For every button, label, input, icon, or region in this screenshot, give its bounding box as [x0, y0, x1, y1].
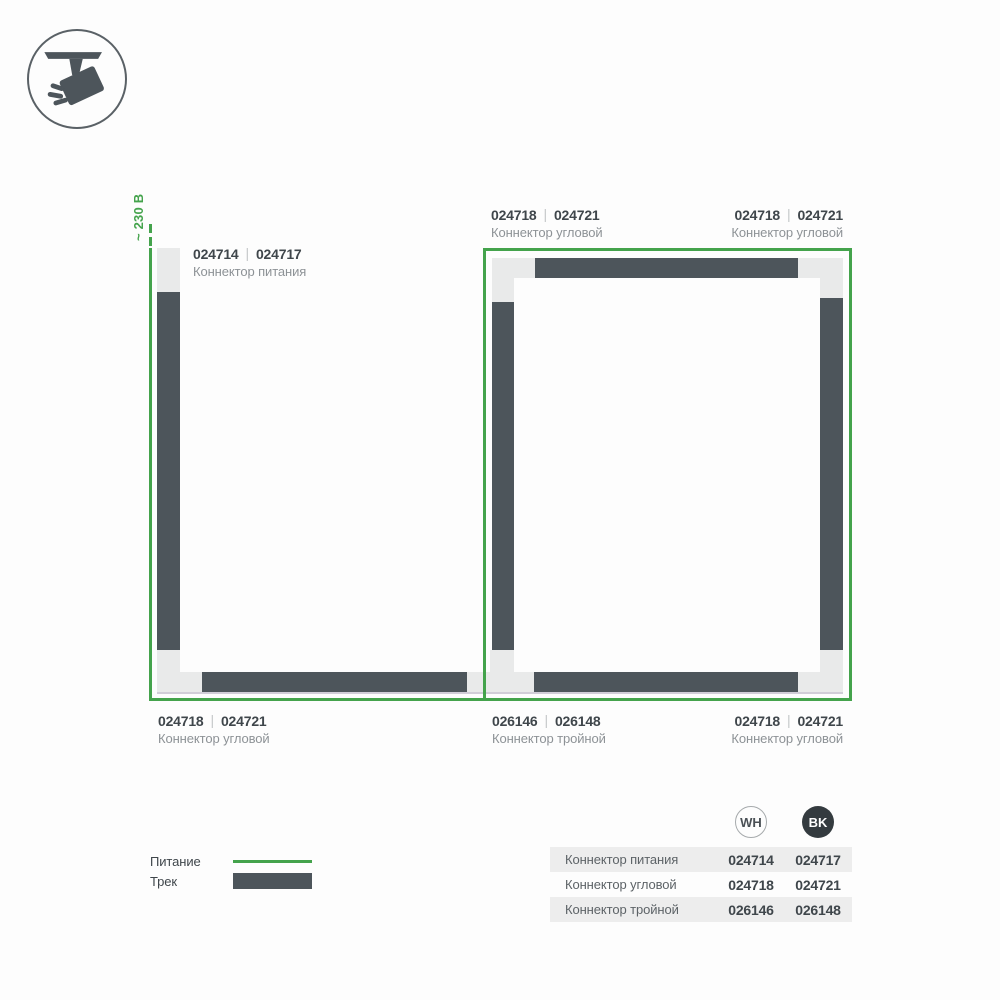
separator: | — [538, 712, 555, 728]
separator: | — [780, 712, 797, 728]
legend-track-label: Трек — [150, 874, 177, 889]
power-line-loop — [483, 248, 852, 701]
part-number-bk: 026148 — [555, 713, 601, 729]
part-number-bk: 024721 — [797, 713, 843, 729]
header-spacer — [550, 806, 718, 838]
connector-name: Коннектор питания — [193, 265, 306, 279]
row-wh-number: 024718 — [718, 877, 784, 893]
part-number-bk: 024717 — [256, 246, 302, 262]
table-row: Коннектор тройной 026146 026148 — [550, 897, 852, 922]
parts-table-header: WH BK — [550, 806, 852, 838]
connector-name: Коннектор угловой — [491, 226, 603, 240]
table-row: Коннектор питания 024714 024717 — [550, 847, 852, 872]
callout-corner-top-right: 024718|024721 Коннектор угловой — [731, 208, 843, 241]
part-numbers: 026146|026148 — [492, 714, 606, 729]
callout-triple-connector: 026146|026148 Коннектор тройной — [492, 714, 606, 747]
row-bk-number: 026148 — [784, 902, 852, 918]
parts-table: WH BK Коннектор питания 024714 024717 Ко… — [550, 806, 852, 922]
track-spotlight-icon — [27, 29, 127, 129]
power-line-left — [149, 248, 152, 701]
legend-power-line — [233, 860, 312, 863]
part-numbers: 024718|024721 — [731, 714, 843, 729]
part-number-wh: 024714 — [193, 246, 239, 262]
bk-color-badge: BK — [802, 806, 834, 838]
power-line-dash — [149, 224, 152, 233]
row-name: Коннектор тройной — [550, 902, 718, 917]
part-number-wh: 024718 — [158, 713, 204, 729]
part-number-bk: 024721 — [797, 207, 843, 223]
part-numbers: 024714|024717 — [193, 247, 306, 262]
voltage-label: ~ 230 В — [131, 194, 146, 241]
table-row: Коннектор угловой 024718 024721 — [550, 872, 852, 897]
legend-track-bar — [233, 873, 312, 889]
separator: | — [537, 206, 554, 222]
callout-power-connector: 024714|024717 Коннектор питания — [193, 247, 306, 280]
part-number-wh: 026146 — [492, 713, 538, 729]
separator: | — [780, 206, 797, 222]
track-segment-left-vertical — [157, 292, 180, 650]
separator: | — [204, 712, 221, 728]
track-spotlight-glyph — [29, 31, 125, 127]
part-number-wh: 024718 — [735, 713, 781, 729]
row-bk-number: 024717 — [784, 852, 852, 868]
row-name: Коннектор угловой — [550, 877, 718, 892]
part-number-wh: 024718 — [491, 207, 537, 223]
connector-name: Коннектор угловой — [158, 732, 270, 746]
part-number-bk: 024721 — [554, 207, 600, 223]
legend-power-label: Питание — [150, 854, 201, 869]
part-numbers: 024718|024721 — [158, 714, 270, 729]
connector-name: Коннектор угловой — [731, 226, 843, 240]
row-wh-number: 026146 — [718, 902, 784, 918]
row-name: Коннектор питания — [550, 852, 718, 867]
part-numbers: 024718|024721 — [731, 208, 843, 223]
power-line-dash — [149, 237, 152, 246]
connector-name: Коннектор тройной — [492, 732, 606, 746]
row-bk-number: 024721 — [784, 877, 852, 893]
track-segment-left-bottom — [202, 672, 467, 692]
connector-name: Коннектор угловой — [731, 732, 843, 746]
part-number-wh: 024718 — [735, 207, 781, 223]
callout-corner-bottom-right: 024718|024721 Коннектор угловой — [731, 714, 843, 747]
corner-connector-bottom-left — [157, 672, 202, 692]
callout-corner-bottom-left: 024718|024721 Коннектор угловой — [158, 714, 270, 747]
header-col-wh: WH — [718, 806, 784, 838]
header-col-bk: BK — [784, 806, 852, 838]
separator: | — [239, 245, 256, 261]
power-connector — [157, 248, 180, 292]
callout-corner-top-mid: 024718|024721 Коннектор угловой — [491, 208, 603, 241]
row-wh-number: 024714 — [718, 852, 784, 868]
part-number-bk: 024721 — [221, 713, 267, 729]
part-numbers: 024718|024721 — [491, 208, 603, 223]
corner-connector-bottom-left — [157, 650, 180, 672]
wh-color-badge: WH — [735, 806, 767, 838]
